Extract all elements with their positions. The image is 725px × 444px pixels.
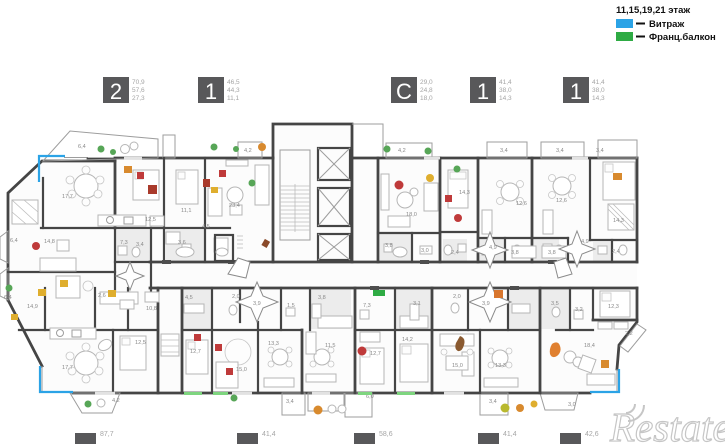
- svg-text:3,8: 3,8: [511, 250, 519, 256]
- svg-text:С: С: [396, 79, 412, 104]
- svg-text:41,4: 41,4: [262, 431, 276, 438]
- svg-text:6,4: 6,4: [10, 238, 18, 244]
- svg-text:2,6: 2,6: [98, 293, 106, 299]
- svg-text:38,0: 38,0: [592, 87, 605, 94]
- svg-text:3,8: 3,8: [548, 250, 556, 256]
- svg-text:Restate: Restate: [609, 404, 725, 444]
- svg-text:2,0: 2,0: [453, 294, 461, 300]
- svg-text:6,4: 6,4: [78, 144, 86, 150]
- svg-text:14,2: 14,2: [402, 337, 413, 343]
- svg-text:Витраж: Витраж: [649, 19, 684, 30]
- svg-text:2,0: 2,0: [232, 294, 240, 300]
- svg-text:4,2: 4,2: [398, 148, 406, 154]
- svg-text:15,0: 15,0: [452, 363, 463, 369]
- svg-text:57,6: 57,6: [132, 87, 145, 94]
- svg-text:41,4: 41,4: [592, 79, 605, 86]
- svg-text:2,4: 2,4: [451, 250, 459, 256]
- svg-text:3,9: 3,9: [253, 301, 261, 307]
- svg-text:41,4: 41,4: [499, 79, 512, 86]
- svg-text:18,0: 18,0: [406, 212, 417, 218]
- svg-text:12,5: 12,5: [145, 217, 156, 223]
- svg-text:2,2: 2,2: [625, 331, 633, 337]
- svg-text:38,0: 38,0: [499, 87, 512, 94]
- svg-text:2: 2: [110, 79, 122, 104]
- svg-text:87,7: 87,7: [100, 431, 114, 438]
- svg-text:29,0: 29,0: [420, 79, 433, 86]
- svg-text:11,15,19,21 этаж: 11,15,19,21 этаж: [616, 5, 690, 16]
- svg-text:3,4: 3,4: [500, 148, 508, 154]
- svg-text:17,7: 17,7: [62, 194, 73, 200]
- svg-text:4,9: 4,9: [581, 239, 589, 245]
- svg-text:11,1: 11,1: [227, 95, 240, 102]
- svg-text:17,7: 17,7: [62, 365, 73, 371]
- svg-text:3,4: 3,4: [596, 148, 604, 154]
- svg-text:18,4: 18,4: [584, 343, 595, 349]
- svg-text:12,7: 12,7: [370, 351, 381, 357]
- svg-text:12,3: 12,3: [608, 304, 619, 310]
- svg-text:44,3: 44,3: [227, 87, 240, 94]
- svg-text:3,0: 3,0: [421, 248, 429, 254]
- svg-text:14,9: 14,9: [27, 304, 38, 310]
- svg-text:2,4: 2,4: [612, 249, 620, 255]
- svg-text:4,5: 4,5: [185, 295, 193, 301]
- svg-text:4,9: 4,9: [489, 245, 497, 251]
- svg-text:4,2: 4,2: [244, 148, 252, 154]
- svg-text:14,3: 14,3: [592, 95, 605, 102]
- svg-text:27,3: 27,3: [132, 95, 145, 102]
- svg-text:3,1: 3,1: [413, 301, 421, 307]
- svg-text:10,8: 10,8: [146, 306, 157, 312]
- svg-text:3,4: 3,4: [489, 399, 497, 405]
- svg-text:4,2: 4,2: [112, 398, 120, 404]
- svg-text:23,4: 23,4: [229, 203, 240, 209]
- svg-text:11,5: 11,5: [325, 343, 335, 349]
- svg-text:3,4: 3,4: [286, 399, 294, 405]
- svg-text:14,3: 14,3: [459, 190, 470, 196]
- svg-text:46,5: 46,5: [227, 79, 240, 86]
- svg-text:3,4: 3,4: [556, 148, 564, 154]
- svg-text:1: 1: [570, 79, 582, 104]
- svg-text:3,5: 3,5: [551, 301, 559, 307]
- svg-text:12,7: 12,7: [190, 349, 201, 355]
- svg-text:1: 1: [205, 79, 217, 104]
- svg-text:24,8: 24,8: [420, 87, 433, 94]
- svg-text:14,8: 14,8: [44, 239, 55, 245]
- svg-text:12,6: 12,6: [556, 198, 567, 204]
- svg-text:7,3: 7,3: [120, 240, 128, 246]
- svg-text:58,6: 58,6: [379, 431, 393, 438]
- svg-text:3,4: 3,4: [136, 242, 144, 248]
- svg-text:15,0: 15,0: [236, 367, 247, 373]
- svg-text:1: 1: [477, 79, 489, 104]
- svg-text:4,5: 4,5: [202, 224, 210, 230]
- svg-text:3,8: 3,8: [318, 295, 326, 301]
- svg-text:14,3: 14,3: [613, 218, 624, 224]
- svg-text:3,0: 3,0: [568, 402, 576, 408]
- svg-text:3,8: 3,8: [385, 243, 393, 249]
- svg-text:42,6: 42,6: [585, 431, 599, 438]
- svg-text:13,3: 13,3: [268, 341, 279, 347]
- svg-text:6,4: 6,4: [4, 295, 12, 301]
- svg-text:70,9: 70,9: [132, 79, 145, 86]
- svg-text:12,5: 12,5: [135, 340, 146, 346]
- svg-text:14,3: 14,3: [499, 95, 512, 102]
- svg-text:3,2: 3,2: [575, 307, 583, 313]
- svg-text:18,0: 18,0: [420, 95, 433, 102]
- svg-text:1,5: 1,5: [287, 303, 295, 309]
- svg-text:12,6: 12,6: [516, 201, 527, 207]
- svg-text:3,6: 3,6: [178, 240, 186, 246]
- svg-text:Франц.балкон: Франц.балкон: [649, 32, 716, 43]
- svg-text:41,4: 41,4: [503, 431, 517, 438]
- svg-text:3,9: 3,9: [482, 301, 490, 307]
- svg-text:13,3: 13,3: [495, 363, 506, 369]
- svg-text:11,1: 11,1: [181, 208, 191, 214]
- svg-text:7,3: 7,3: [363, 303, 371, 309]
